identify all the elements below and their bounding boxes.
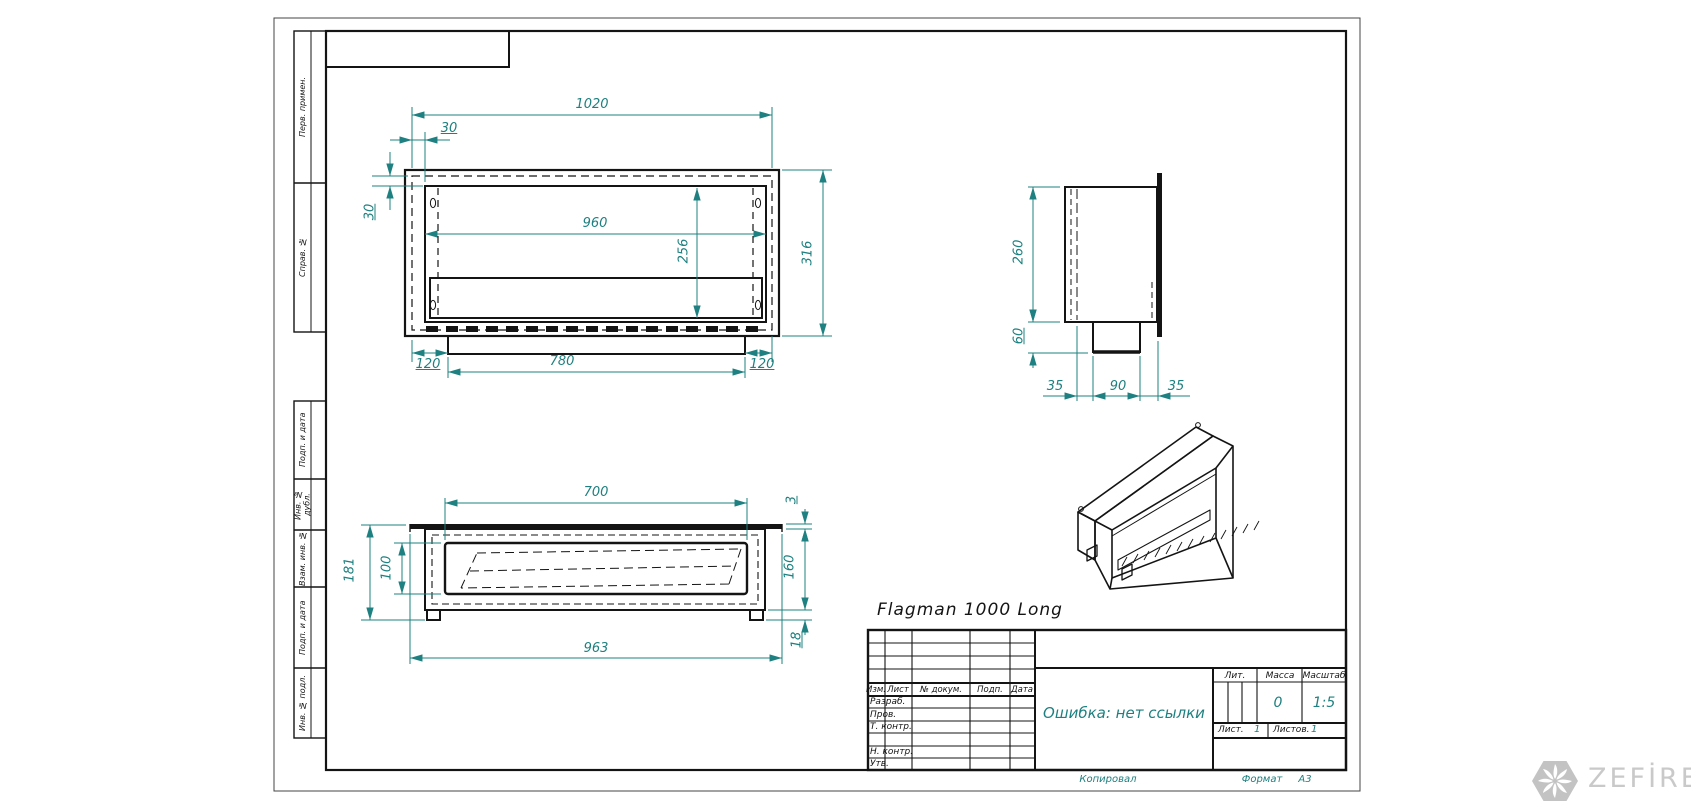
isometric-view xyxy=(1078,423,1259,589)
sheet-border xyxy=(274,18,1360,791)
dim-front-offset-side: 30 xyxy=(363,204,378,221)
plan-view xyxy=(410,524,782,620)
dim-side-inset-right: 35 xyxy=(1168,379,1185,394)
dim-plan-flange-width: 963 xyxy=(584,641,609,656)
dim-plan-flange-thickness: 3 xyxy=(785,496,800,504)
tb-massa-label: Масса xyxy=(1266,671,1295,681)
tb-list-label: Лист. xyxy=(1218,725,1244,735)
tb-col-list: Лист xyxy=(887,685,909,695)
margin-label-sprav-n: Справ. № xyxy=(294,183,311,332)
dim-front-total-height: 316 xyxy=(801,241,816,266)
tb-listov-label: Листов. xyxy=(1273,725,1309,735)
dim-side-base-height: 60 xyxy=(1012,328,1027,345)
tb-col-ndokum: № докум. xyxy=(920,685,962,695)
drawing-sheet: Перв. примен. Справ. № Подп. и дата Инв.… xyxy=(0,0,1691,810)
top-left-stamp-box xyxy=(326,31,509,67)
front-view-dimensions xyxy=(372,107,832,378)
drawing-frame xyxy=(326,31,1346,770)
dim-front-offset-top: 30 xyxy=(441,121,458,136)
dim-front-opening-height: 256 xyxy=(677,239,692,264)
tb-lit-label: Лит. xyxy=(1225,671,1246,681)
margin-label-perv-primen: Перв. примен. xyxy=(294,31,311,183)
dim-plan-feet-height: 18 xyxy=(790,632,805,649)
footer-kopiroval: Копировал xyxy=(1079,774,1136,785)
tb-row-razrab: Разраб. xyxy=(870,697,905,707)
tb-masshtab-value: 1:5 xyxy=(1313,695,1336,711)
dim-front-base-inset-right: 120 xyxy=(750,357,775,372)
drawing-linework xyxy=(0,0,1691,810)
tb-row-tkontr: Т. контр. xyxy=(870,722,912,732)
tb-col-podp: Подп. xyxy=(977,685,1003,695)
tb-col-data: Дата xyxy=(1011,685,1033,695)
dim-front-base-width: 780 xyxy=(550,354,575,369)
zefire-logo-text: ZEFİRE xyxy=(1588,763,1691,794)
front-view xyxy=(405,170,779,354)
margin-label-inv-podl: Инв. № подл. xyxy=(294,668,311,738)
tb-masshtab-label: Масштаб xyxy=(1303,671,1346,681)
tb-listov-value: 1 xyxy=(1311,724,1317,735)
dim-side-inset-left: 35 xyxy=(1047,379,1064,394)
drawing-title: Flagman 1000 Long xyxy=(877,600,1063,620)
footer-format-value: А3 xyxy=(1298,774,1311,785)
side-view-dimensions xyxy=(1028,187,1190,401)
dim-plan-total-depth: 181 xyxy=(343,558,358,583)
margin-label-podp-data-1: Подп. и дата xyxy=(294,401,311,479)
tb-row-prov: Пров. xyxy=(870,710,896,720)
dim-front-base-inset-left: 120 xyxy=(416,357,441,372)
side-view xyxy=(1065,173,1162,352)
tb-row-nkontr: Н. контр. xyxy=(870,747,913,757)
footer-format-label: Формат xyxy=(1242,774,1283,785)
dim-front-opening-width: 960 xyxy=(583,216,608,231)
tb-col-izm: Изм. xyxy=(866,685,886,695)
tb-row-utv: Утв. xyxy=(870,759,889,769)
dim-plan-opening-depth: 100 xyxy=(380,556,395,581)
dim-plan-opening-width: 700 xyxy=(584,485,609,500)
tb-massa-value: 0 xyxy=(1274,695,1283,711)
plan-view-dimensions xyxy=(361,498,812,664)
margin-label-vzam-inv: Взам. инв. № xyxy=(294,530,311,587)
dim-side-body-height: 260 xyxy=(1012,240,1027,265)
tb-list-value: 1 xyxy=(1254,724,1260,735)
margin-label-podp-data-2: Подп. и дата xyxy=(294,587,311,668)
zefire-logo-icon xyxy=(1532,761,1578,801)
dim-plan-body-depth: 160 xyxy=(783,555,798,580)
dim-side-base-width: 90 xyxy=(1110,379,1127,394)
margin-label-inv-dubl: Инв. № дубл. xyxy=(294,479,311,530)
dim-front-total-width: 1020 xyxy=(575,97,608,112)
tb-doc-name: Ошибка: нет ссылки xyxy=(1043,704,1205,722)
